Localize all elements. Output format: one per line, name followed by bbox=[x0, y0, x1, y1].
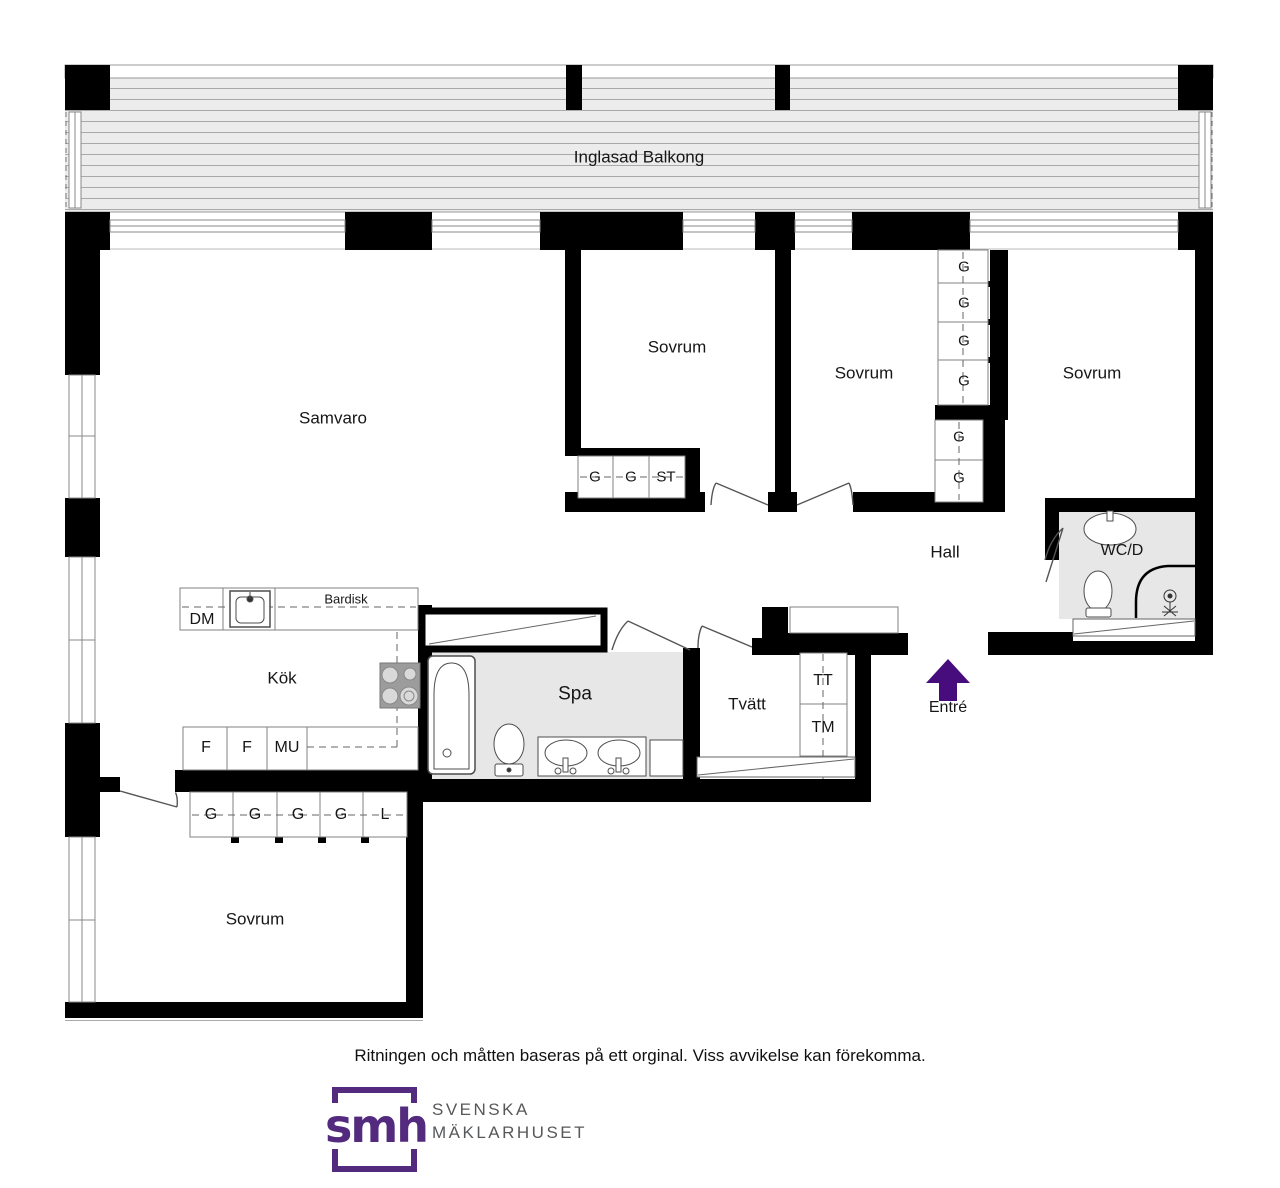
closet-label: G bbox=[335, 807, 347, 823]
closet-label: G bbox=[953, 430, 965, 445]
room-label-spa: Spa bbox=[558, 685, 592, 704]
closet-label: G bbox=[953, 471, 965, 486]
label-entre: Entré bbox=[929, 700, 967, 716]
sliding-door-tvatt bbox=[697, 757, 855, 777]
room-label-samvaro: Samvaro bbox=[299, 410, 367, 427]
closet-label: G bbox=[625, 470, 637, 485]
brand-line-2: MÄKLARHUSET bbox=[432, 1121, 587, 1144]
brand-name: SVENSKA MÄKLARHUSET bbox=[432, 1098, 587, 1144]
closet-label: G bbox=[249, 807, 261, 823]
floor-plan-linework bbox=[0, 0, 1280, 1188]
appliance-label-tt: TT bbox=[813, 673, 833, 689]
disclaimer-text: Ritningen och måtten baseras på ett orgi… bbox=[354, 1046, 925, 1066]
closet-label: G bbox=[589, 470, 601, 485]
room-label-sovrum-1: Sovrum bbox=[648, 339, 707, 356]
appliance-label-f1: F bbox=[201, 740, 211, 756]
closet-label: G bbox=[205, 807, 217, 823]
kitchen-sink-icon bbox=[230, 591, 270, 627]
floor-plan: Inglasad Balkong Samvaro Sovrum Sovrum S… bbox=[0, 0, 1280, 1188]
closet-label: G bbox=[958, 374, 970, 389]
balcony-floor bbox=[65, 65, 1213, 212]
appliance-label-f2: F bbox=[242, 740, 252, 756]
room-label-wcd: WC/D bbox=[1101, 543, 1144, 559]
wcd-toilet-icon bbox=[1084, 571, 1112, 617]
room-label-tvatt: Tvätt bbox=[728, 696, 766, 713]
room-label-sovrum-4: Sovrum bbox=[226, 911, 285, 928]
closet-label: G bbox=[958, 296, 970, 311]
spa-toilet-icon bbox=[494, 724, 524, 776]
brand-line-1: SVENSKA bbox=[432, 1098, 587, 1121]
room-label-balcony: Inglasad Balkong bbox=[574, 149, 704, 166]
double-sink-vanity-icon bbox=[538, 737, 646, 776]
appliance-label-tm: TM bbox=[811, 720, 834, 736]
sliding-wardrobe-spa bbox=[422, 611, 604, 649]
room-label-hall: Hall bbox=[930, 544, 959, 561]
label-bardisk: Bardisk bbox=[324, 593, 367, 606]
room-label-sovrum-3: Sovrum bbox=[1063, 365, 1122, 382]
bathtub-icon bbox=[428, 656, 475, 774]
closet-label: G bbox=[292, 807, 304, 823]
closet-label: G bbox=[958, 260, 970, 275]
smh-logo-text: smh bbox=[324, 1103, 430, 1149]
floorplan-page: { "plan": { "balcony": { "label": "Ingla… bbox=[0, 0, 1280, 1188]
entry-arrow bbox=[926, 659, 970, 701]
closet-label: ST bbox=[656, 470, 675, 485]
appliance-label-dm: DM bbox=[190, 612, 215, 628]
closet-label: G bbox=[958, 334, 970, 349]
room-label-kok: Kök bbox=[267, 670, 296, 687]
spa-corner-unit bbox=[650, 740, 683, 776]
sliding-door-wcd bbox=[1073, 619, 1195, 636]
stove-icon bbox=[380, 663, 420, 708]
appliance-label-mu: MU bbox=[275, 740, 300, 756]
closet-label: L bbox=[381, 807, 390, 823]
room-label-sovrum-2: Sovrum bbox=[835, 365, 894, 382]
